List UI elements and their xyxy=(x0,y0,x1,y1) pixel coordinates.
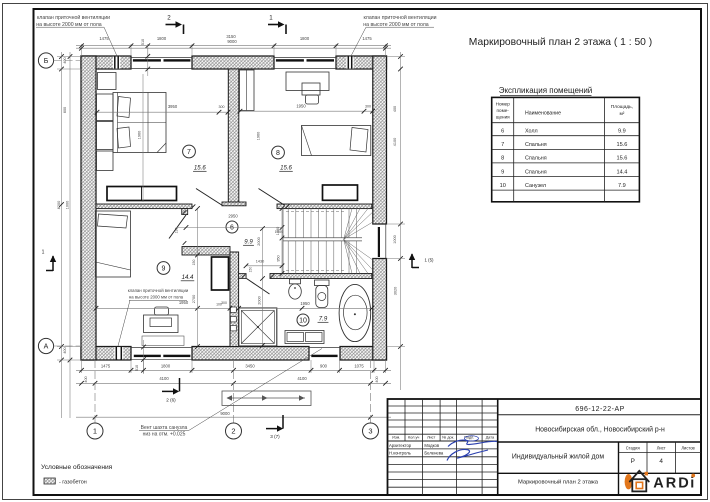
svg-text:4100: 4100 xyxy=(393,138,397,146)
svg-text:Архитектор: Архитектор xyxy=(389,443,412,448)
svg-text:1950: 1950 xyxy=(300,301,310,306)
svg-text:Б: Б xyxy=(44,58,49,65)
svg-text:150: 150 xyxy=(192,260,196,266)
svg-text:1800: 1800 xyxy=(300,36,310,41)
svg-text:10: 10 xyxy=(299,318,307,325)
svg-text:Санузел: Санузел xyxy=(525,183,546,189)
svg-text:3950: 3950 xyxy=(168,104,178,109)
svg-text:Наименование: Наименование xyxy=(525,111,561,117)
svg-text:клапан приточной вентиляции: клапан приточной вентиляции xyxy=(37,14,110,21)
svg-text:Модков: Модков xyxy=(424,443,439,448)
svg-text:Изм.: Изм. xyxy=(392,436,400,440)
svg-text:1475: 1475 xyxy=(101,363,111,368)
svg-text:4100: 4100 xyxy=(159,376,169,381)
svg-text:150: 150 xyxy=(249,267,253,273)
svg-text:2950: 2950 xyxy=(228,214,238,219)
svg-text:Маркировочный план 2 этажа ( 1: Маркировочный план 2 этажа ( 1 : 50 ) xyxy=(469,37,652,48)
svg-text:Условные обозначения: Условные обозначения xyxy=(41,463,113,471)
svg-text:4100: 4100 xyxy=(297,376,307,381)
svg-text:на высоте 2000 мм от пола: на высоте 2000 мм от пола xyxy=(129,294,184,299)
svg-text:10: 10 xyxy=(500,183,506,189)
svg-text:Спальня: Спальня xyxy=(525,156,547,162)
svg-text:низ на отм. +0.025: низ на отм. +0.025 xyxy=(143,431,186,437)
svg-text:9.9: 9.9 xyxy=(244,239,253,246)
svg-text:Вент шахта санузла: Вент шахта санузла xyxy=(141,425,188,431)
svg-text:9000: 9000 xyxy=(220,411,230,416)
svg-text:Беленева: Беленева xyxy=(424,451,444,456)
svg-text:2700: 2700 xyxy=(192,295,196,303)
svg-text:15.6: 15.6 xyxy=(194,165,206,172)
svg-text:3450: 3450 xyxy=(245,363,255,368)
svg-text:510: 510 xyxy=(135,365,139,371)
svg-text:510: 510 xyxy=(141,39,145,45)
svg-text:Спальня: Спальня xyxy=(525,142,547,148)
svg-text:- газобетон: - газобетон xyxy=(59,480,87,486)
svg-text:3020: 3020 xyxy=(394,287,398,295)
svg-text:Спальня: Спальня xyxy=(525,169,547,175)
svg-text:Н.контроль: Н.контроль xyxy=(389,451,412,456)
svg-text:1: 1 xyxy=(93,427,97,436)
svg-text:696-12-22-АР: 696-12-22-АР xyxy=(575,406,625,413)
svg-text:9: 9 xyxy=(162,266,166,273)
svg-text:300: 300 xyxy=(365,105,371,109)
svg-text:клапан приточной вентиляции: клапан приточной вентиляции xyxy=(363,14,436,21)
svg-text:Листов: Листов xyxy=(681,446,694,451)
svg-text:1475: 1475 xyxy=(99,36,109,41)
svg-text:6: 6 xyxy=(230,225,234,232)
svg-text:400: 400 xyxy=(375,376,379,382)
svg-text:9000: 9000 xyxy=(227,39,237,44)
svg-text:Лист: Лист xyxy=(657,446,666,451)
svg-text:14.4: 14.4 xyxy=(616,169,627,175)
svg-text:Холл: Холл xyxy=(525,129,538,135)
svg-text:4: 4 xyxy=(659,458,663,465)
svg-text:1000: 1000 xyxy=(65,201,69,209)
svg-text:1800: 1800 xyxy=(157,36,167,41)
svg-text:2000: 2000 xyxy=(257,237,261,245)
svg-text:1950: 1950 xyxy=(296,104,306,109)
svg-text:9.9: 9.9 xyxy=(618,129,626,135)
svg-text:15.6: 15.6 xyxy=(616,142,627,148)
svg-text:1430: 1430 xyxy=(256,259,264,263)
svg-text:Стадия: Стадия xyxy=(626,446,640,451)
svg-text:1475: 1475 xyxy=(362,36,372,41)
svg-text:Площадь,: Площадь, xyxy=(611,104,633,110)
svg-text:6: 6 xyxy=(501,129,504,135)
svg-text:7.9: 7.9 xyxy=(618,183,626,189)
svg-text:130: 130 xyxy=(175,228,179,234)
svg-text:1480: 1480 xyxy=(276,227,280,235)
svg-text:клапан приточной вентиляции: клапан приточной вентиляции xyxy=(128,288,189,293)
svg-text:3: 3 xyxy=(368,427,372,436)
svg-text:400: 400 xyxy=(63,347,67,353)
svg-text:ARD: ARD xyxy=(653,476,690,492)
svg-text:2: 2 xyxy=(167,15,171,22)
svg-text:i: i xyxy=(690,476,694,492)
svg-text:Кол.уч: Кол.уч xyxy=(408,436,419,440)
svg-text:на высоте 2000 мм от пола: на высоте 2000 мм от пола xyxy=(363,22,428,28)
svg-text:950: 950 xyxy=(277,255,281,261)
svg-text:2: 2 xyxy=(231,427,235,436)
svg-text:1: 1 xyxy=(269,15,273,22)
svg-text:8: 8 xyxy=(501,156,504,162)
svg-text:Р: Р xyxy=(631,458,635,465)
svg-text:Индивидуальный жилой дом: Индивидуальный жилой дом xyxy=(512,453,604,461)
svg-text:15.6: 15.6 xyxy=(616,156,627,162)
svg-text:300: 300 xyxy=(219,105,225,109)
svg-text:300: 300 xyxy=(221,301,227,305)
svg-text:9: 9 xyxy=(501,169,504,175)
svg-text:7.9: 7.9 xyxy=(319,316,328,323)
svg-text:1 (5): 1 (5) xyxy=(424,258,434,263)
svg-text:1800: 1800 xyxy=(161,363,171,368)
svg-text:8: 8 xyxy=(276,150,280,157)
svg-text:400: 400 xyxy=(84,376,88,382)
svg-text:3 (7): 3 (7) xyxy=(270,434,280,439)
svg-text:8200: 8200 xyxy=(57,201,61,209)
svg-text:щения: щения xyxy=(496,115,510,120)
svg-text:поме-: поме- xyxy=(497,108,510,113)
svg-text:1000: 1000 xyxy=(393,235,397,243)
svg-text:7: 7 xyxy=(501,142,504,148)
svg-text:1960: 1960 xyxy=(138,131,142,139)
svg-text:Экспликация помещений: Экспликация помещений xyxy=(499,86,593,95)
svg-text:400: 400 xyxy=(393,106,397,112)
svg-text:Номер: Номер xyxy=(496,101,511,106)
svg-text:1: 1 xyxy=(42,250,45,256)
svg-text:А: А xyxy=(44,344,49,351)
svg-text:1075: 1075 xyxy=(354,363,364,368)
svg-text:2000: 2000 xyxy=(257,296,261,304)
svg-text:Дата: Дата xyxy=(486,436,495,440)
svg-text:7: 7 xyxy=(187,149,191,156)
svg-text:15.6: 15.6 xyxy=(280,165,292,172)
svg-text:Новосибирская обл., Новосибирс: Новосибирская обл., Новосибирский р-н xyxy=(535,426,665,434)
svg-text:600: 600 xyxy=(63,107,67,113)
svg-text:Лист: Лист xyxy=(427,436,436,440)
svg-text:на высоте 2000 мм от пола: на высоте 2000 мм от пола xyxy=(36,22,101,28)
svg-text:2 (6): 2 (6) xyxy=(166,398,176,403)
svg-text:м²: м² xyxy=(619,111,624,117)
svg-text:14.4: 14.4 xyxy=(182,274,194,281)
svg-text:№ док.: № док. xyxy=(442,436,454,440)
svg-text:1960: 1960 xyxy=(257,132,261,140)
svg-text:900: 900 xyxy=(320,363,328,368)
svg-text:Маркировочный план 2 этажа: Маркировочный план 2 этажа xyxy=(518,479,599,486)
svg-text:100: 100 xyxy=(216,303,222,307)
